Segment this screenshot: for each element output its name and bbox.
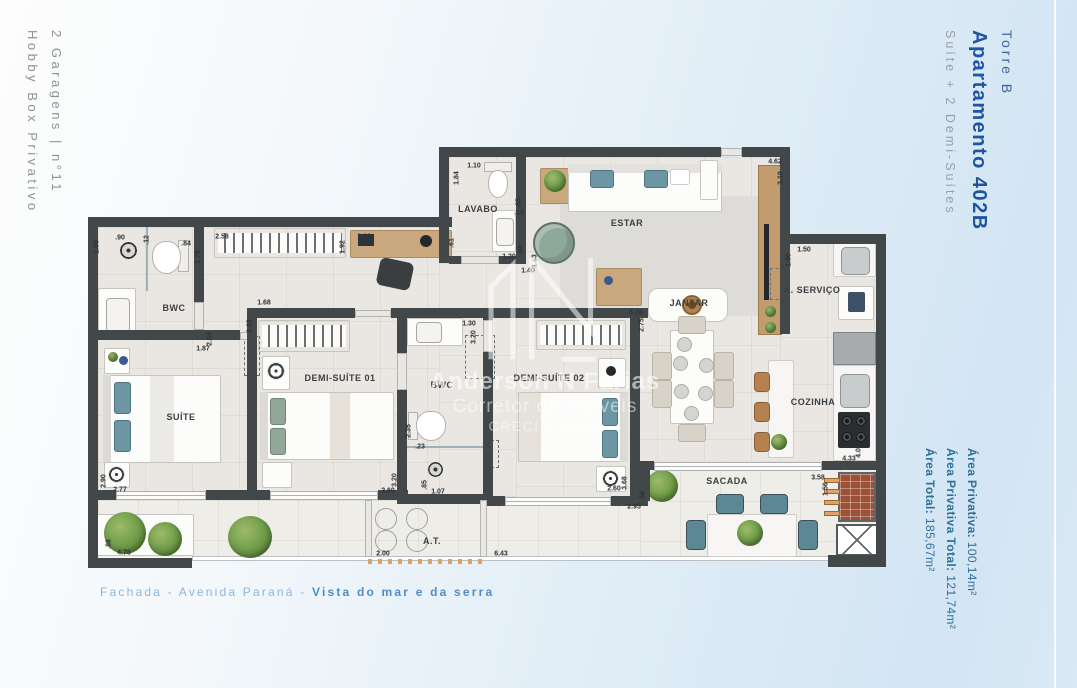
dimension-label: 1.20: [502, 254, 516, 261]
dimension-label: 2.35: [406, 424, 413, 438]
room-label: SACADA: [706, 476, 748, 486]
plant-icon: [646, 470, 678, 502]
dimension-label: 3.33: [247, 319, 254, 333]
pillow: [270, 428, 286, 455]
wall: [397, 494, 493, 504]
wall: [397, 308, 407, 353]
shower-head-icon: [428, 462, 443, 477]
toilet: [152, 241, 181, 274]
room-label: ESTAR: [611, 218, 643, 228]
dimension-label: 4.04: [856, 444, 863, 458]
floor-foyer: [439, 263, 516, 314]
entry-cabinet: [700, 160, 718, 200]
dimension-label: 4.62: [768, 159, 782, 166]
dimension-label: 1.88: [357, 234, 371, 241]
kitchen-sink: [840, 374, 870, 408]
plant-icon: [765, 306, 776, 317]
wall: [439, 147, 449, 263]
dimension-label: 3.20: [471, 330, 478, 344]
wardrobe: [214, 228, 346, 258]
dimension-label: .61: [449, 238, 456, 248]
toilet: [416, 411, 446, 441]
wall: [206, 490, 270, 500]
bwc2-door-sill: [397, 353, 407, 390]
stool: [754, 402, 770, 422]
wall: [88, 490, 116, 500]
dimension-label: 3.58: [811, 475, 825, 482]
dimension-label: 2.58: [215, 234, 229, 241]
dimension-label: .85: [422, 480, 429, 490]
dimension-label: 6.43: [494, 551, 508, 558]
wardrobe: [536, 320, 626, 350]
dimension-label: 1.07: [431, 489, 445, 496]
room-label: DEMI-SUÍTE 01: [304, 373, 375, 383]
plant-icon: [765, 322, 776, 333]
dimension-label: .98: [518, 245, 525, 255]
dimension-label: 1.92: [340, 240, 347, 254]
dimension-label: 1.50: [797, 247, 811, 254]
room-label: A. SERVIÇO: [784, 285, 841, 295]
wall: [449, 256, 461, 264]
wall: [247, 308, 257, 490]
wall: [640, 461, 654, 470]
dimension-label: 2.60: [607, 486, 621, 493]
duvet-band: [330, 393, 350, 459]
dimension-label: 4.33: [842, 456, 856, 463]
at-sill: [365, 500, 372, 557]
dimension-label: 2.90: [101, 474, 108, 488]
dimension-label: 2.95: [627, 504, 641, 511]
dining-chair: [678, 424, 706, 442]
pillow: [114, 382, 131, 414]
dining-chair: [714, 352, 734, 380]
pillow: [602, 398, 618, 426]
dimension-label: .88: [106, 539, 113, 549]
dining-chair: [652, 380, 672, 408]
wall: [828, 555, 886, 567]
dimension-label: 4.78: [117, 550, 131, 557]
pillow: [590, 170, 614, 188]
laundry-sink: [841, 247, 870, 275]
pillow: [602, 430, 618, 458]
plate: [677, 337, 692, 352]
sink-basin: [106, 298, 130, 332]
dimension-label: .12: [144, 235, 151, 245]
sink-basin: [416, 322, 442, 343]
plate: [674, 384, 689, 399]
plate: [699, 358, 714, 373]
ac-fan-icon: [375, 508, 397, 530]
duvet-band: [519, 393, 541, 461]
dimension-label: 1.30: [462, 321, 476, 328]
headboard: [103, 375, 111, 463]
dimension-label: 1.93: [532, 254, 539, 268]
lamp-icon: [267, 362, 285, 380]
dimension-label: 2.00: [376, 551, 390, 558]
plate: [673, 356, 688, 371]
room-label: BWC: [431, 380, 454, 390]
dimension-label: .90: [115, 235, 125, 242]
dimension-label: .10: [514, 210, 524, 217]
skewer: [824, 500, 840, 505]
window-demi1: [270, 491, 378, 500]
dimension-label: 1.68: [257, 300, 271, 307]
window-suite: [116, 491, 206, 500]
dimension-label: 1.78: [195, 250, 202, 264]
burner: [842, 432, 852, 442]
plant-icon: [544, 170, 566, 192]
room-label: COZINHA: [791, 397, 836, 407]
plate: [698, 386, 713, 401]
dining-chair: [714, 380, 734, 408]
plant-icon: [228, 516, 272, 558]
washer-door: [848, 292, 865, 312]
dimension-label: 2.77: [113, 487, 127, 494]
dimension-label: 1.84: [454, 171, 461, 185]
fridge: [833, 332, 876, 365]
barbecue-grill: [838, 472, 876, 522]
dimension-label: 2.75: [639, 318, 646, 332]
armchair: [533, 222, 575, 264]
dimension-label: 1.40: [521, 268, 535, 275]
skewer: [824, 511, 840, 516]
ac-fan-icon: [375, 530, 397, 552]
wall: [483, 352, 493, 504]
dimension-label: .85: [516, 198, 523, 208]
at-dotted-edge: [368, 559, 486, 564]
wall: [88, 330, 206, 340]
lavabo-door-sill: [461, 256, 499, 264]
wall: [194, 226, 204, 302]
tv: [764, 224, 769, 300]
wall: [88, 217, 98, 568]
window-living: [654, 462, 822, 471]
room-label: LAVABO: [458, 204, 498, 214]
floorplan: Anderson N Farias Corretor de imóveis CR…: [0, 0, 1077, 688]
dining-chair: [678, 316, 706, 334]
dimension-label: 3.68: [622, 476, 629, 490]
room-label: JANTAR: [670, 298, 709, 308]
dimension-label: 5.26: [629, 310, 643, 317]
burner: [842, 416, 852, 426]
wall: [88, 217, 452, 227]
balcony-chair: [798, 520, 818, 550]
dimension-label: 2.04: [207, 332, 214, 346]
plate: [684, 406, 699, 421]
dimension-label: 2.60: [381, 488, 395, 495]
sink-basin: [496, 218, 514, 246]
wall: [876, 234, 886, 564]
decor-item: [604, 276, 613, 285]
dimension-label: 1.87: [196, 346, 210, 353]
plant-icon: [108, 352, 118, 362]
room-label: DEMI-SUÍTE 02: [513, 373, 584, 383]
page: 2 Garagens | n°11 Hobby Box Privativo To…: [0, 0, 1077, 688]
plant-icon: [737, 520, 763, 546]
room-label: SUÍTE: [166, 412, 195, 422]
wall: [439, 147, 721, 157]
dimension-label: 1.90: [94, 240, 101, 254]
wall: [397, 390, 407, 494]
lamp-icon: [108, 466, 125, 483]
bwc-door-sill: [194, 302, 204, 330]
wall: [780, 234, 886, 244]
ac-fan-icon: [406, 508, 428, 530]
dimension-label: 3.19: [778, 171, 785, 185]
dimension-label: 3.20: [392, 473, 399, 487]
dimension-label: .84: [181, 241, 191, 248]
wall: [247, 308, 355, 318]
plant-icon: [771, 434, 787, 450]
balcony-chair: [716, 494, 744, 514]
stool: [754, 432, 770, 452]
at-sill: [480, 500, 487, 557]
decor-item: [119, 356, 128, 365]
coffee-table: [596, 268, 642, 306]
wall: [780, 234, 790, 334]
pillow: [270, 398, 286, 425]
lamp-icon: [602, 470, 619, 487]
burner: [856, 432, 866, 442]
pillow: [644, 170, 668, 188]
shower-head-icon: [120, 242, 137, 259]
balcony-chair: [760, 494, 788, 514]
stool: [754, 372, 770, 392]
dimension-label: 1.60: [786, 253, 793, 267]
dimension-label: .58: [640, 491, 647, 501]
wall: [630, 308, 640, 504]
decor-item: [606, 366, 616, 376]
wall: [483, 308, 493, 320]
balcony-chair: [686, 520, 706, 550]
duct-shaft: [836, 524, 878, 556]
wall: [397, 308, 493, 318]
pillow: [670, 169, 690, 185]
plant-icon: [148, 522, 182, 556]
toilet: [488, 170, 508, 198]
nightstand: [262, 462, 292, 488]
dining-chair: [652, 352, 672, 380]
entry-door-sill: [721, 148, 742, 156]
headboard: [620, 392, 628, 462]
wall: [88, 558, 192, 568]
headboard: [260, 392, 268, 460]
window-demi2: [505, 497, 611, 506]
dimension-label: 1.56: [823, 482, 830, 496]
pillow: [114, 420, 131, 452]
room-label: A.T.: [423, 536, 441, 546]
dimension-label: .23: [415, 444, 425, 451]
demi2-door-sill: [483, 320, 493, 352]
burner: [856, 416, 866, 426]
desk-lamp: [420, 235, 432, 247]
room-label: BWC: [163, 303, 186, 313]
wardrobe: [258, 320, 350, 352]
demi1-door-sill: [355, 310, 391, 317]
wall: [483, 308, 648, 318]
dimension-label: 1.10: [467, 163, 481, 170]
